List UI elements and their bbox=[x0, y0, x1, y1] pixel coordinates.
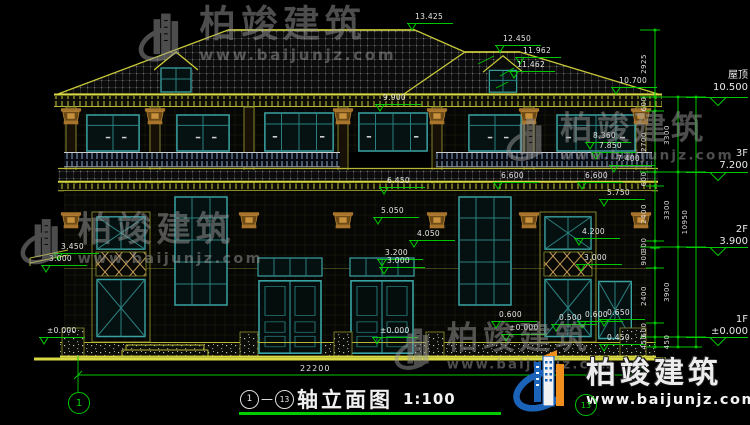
dimension-value: 600 bbox=[640, 172, 648, 187]
floor-level-label: 2F3.900 bbox=[698, 224, 748, 247]
dimension-value: 3900 bbox=[663, 282, 671, 302]
dimension-value: 2400 bbox=[640, 286, 648, 306]
dimension-value: 3300 bbox=[663, 200, 671, 220]
dimension-value: 2700 bbox=[640, 132, 648, 152]
dimension-value: 3300 bbox=[663, 125, 671, 145]
floor-name: 2F bbox=[698, 224, 748, 236]
floor-level-symbol bbox=[686, 170, 748, 182]
drawing-title: 1 — 13 轴立面图 1:100 bbox=[240, 384, 456, 414]
main-eave-band bbox=[54, 95, 662, 107]
floor-level-symbol bbox=[686, 335, 748, 347]
floor-level-symbol bbox=[686, 95, 748, 107]
brand-watermark-color: 柏竣建筑 www.baijunjz.com bbox=[512, 348, 750, 418]
brand-name: 柏竣建筑 bbox=[586, 359, 750, 389]
brand-logo-icon bbox=[512, 348, 578, 418]
dimension-chain bbox=[647, 25, 663, 352]
lattice-band-left bbox=[96, 252, 146, 276]
floor-level-label: 1F±0.000 bbox=[698, 314, 748, 337]
dimension-chain bbox=[688, 92, 704, 352]
brand-url: www.baijunjz.com bbox=[586, 392, 750, 408]
floor-level-label: 3F7.200 bbox=[698, 148, 748, 171]
lattice-band-right bbox=[544, 252, 592, 276]
axis-bubble-1: 1 bbox=[68, 392, 90, 414]
title-scale: 1:100 bbox=[403, 390, 456, 408]
dimension-value: 600 bbox=[640, 97, 648, 112]
dimension-value: 10950 bbox=[681, 210, 689, 235]
floor-name: 3F bbox=[698, 148, 748, 160]
roof bbox=[58, 30, 658, 94]
dimension-value: 900 bbox=[640, 251, 648, 266]
floor-elevation: 10.500 bbox=[698, 82, 748, 94]
floor-name: 1F bbox=[698, 314, 748, 326]
axis-bubble-13-label: 13 bbox=[581, 401, 591, 410]
title-name: 轴立面图 bbox=[297, 384, 393, 414]
axis-bubble-1-label: 1 bbox=[76, 398, 82, 409]
title-axis-end-circle: 13 bbox=[275, 390, 294, 409]
title-underline bbox=[239, 412, 501, 415]
dimension-value: 2925 bbox=[640, 54, 648, 74]
balcony-railing bbox=[64, 152, 652, 167]
overall-width-dimension: 22200 bbox=[300, 364, 330, 373]
title-dash: — bbox=[261, 392, 273, 406]
dimension-value: 2400 bbox=[640, 204, 648, 224]
floor-level-label: 屋顶10.500 bbox=[698, 70, 748, 93]
side-canopy bbox=[30, 250, 68, 266]
cad-elevation-canvas: 22200 1 13 1 — 13 轴立面图 1:100 柏 bbox=[0, 0, 750, 425]
floor-name: 屋顶 bbox=[698, 70, 748, 82]
mid-eave-band bbox=[58, 169, 658, 191]
axis-bubble-13: 13 bbox=[575, 394, 597, 416]
floor-level-symbol bbox=[686, 245, 748, 257]
title-axis-start-circle: 1 bbox=[240, 390, 259, 409]
